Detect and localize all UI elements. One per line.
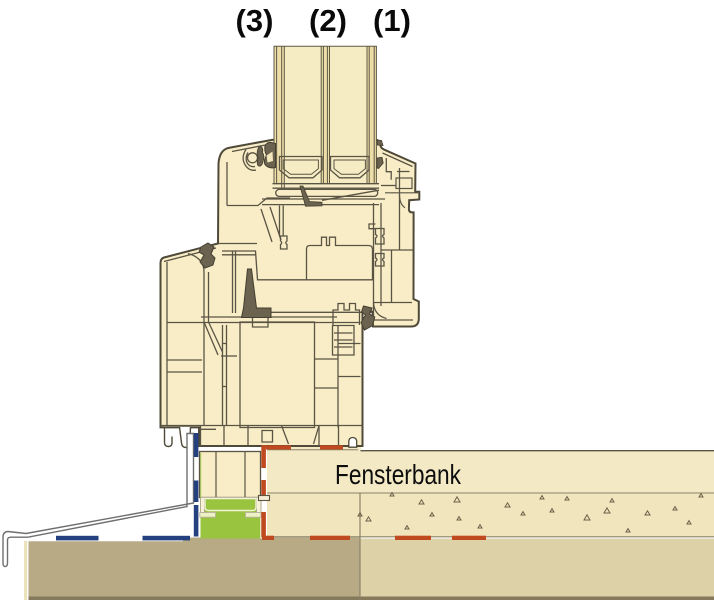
- svg-text:Fensterbank: Fensterbank: [335, 459, 462, 490]
- svg-text:(2): (2): [309, 3, 347, 38]
- svg-text:(3): (3): [236, 3, 274, 38]
- svg-text:(1): (1): [373, 3, 411, 38]
